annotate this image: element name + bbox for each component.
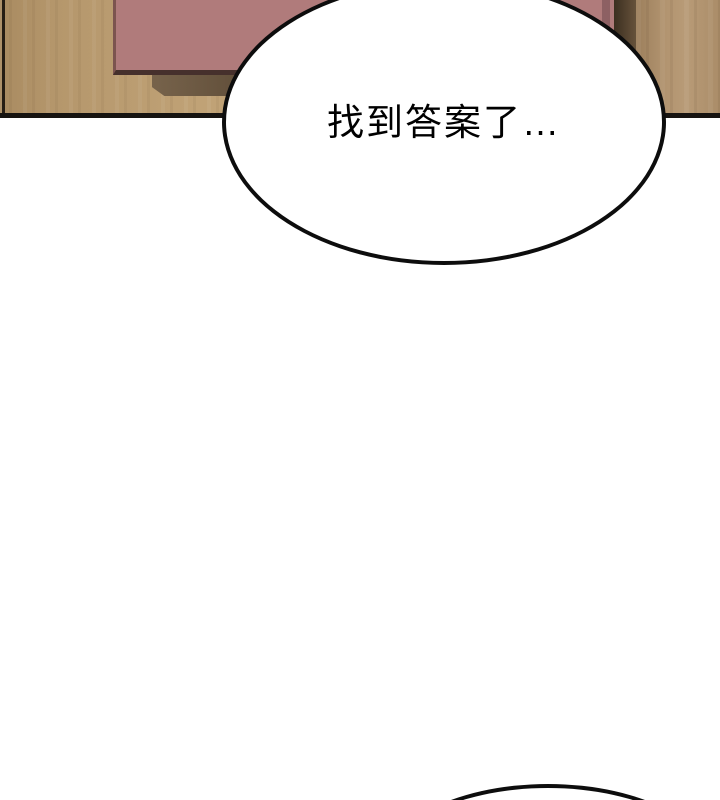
speech-bubble-main: 找到答案了… xyxy=(222,0,666,265)
speech-bubble-text: 找到答案了… xyxy=(327,104,561,141)
speech-bubble-partial-bottom xyxy=(374,784,720,800)
comic-page: 找到答案了… xyxy=(0,0,720,800)
wall-edge-line xyxy=(2,0,5,113)
